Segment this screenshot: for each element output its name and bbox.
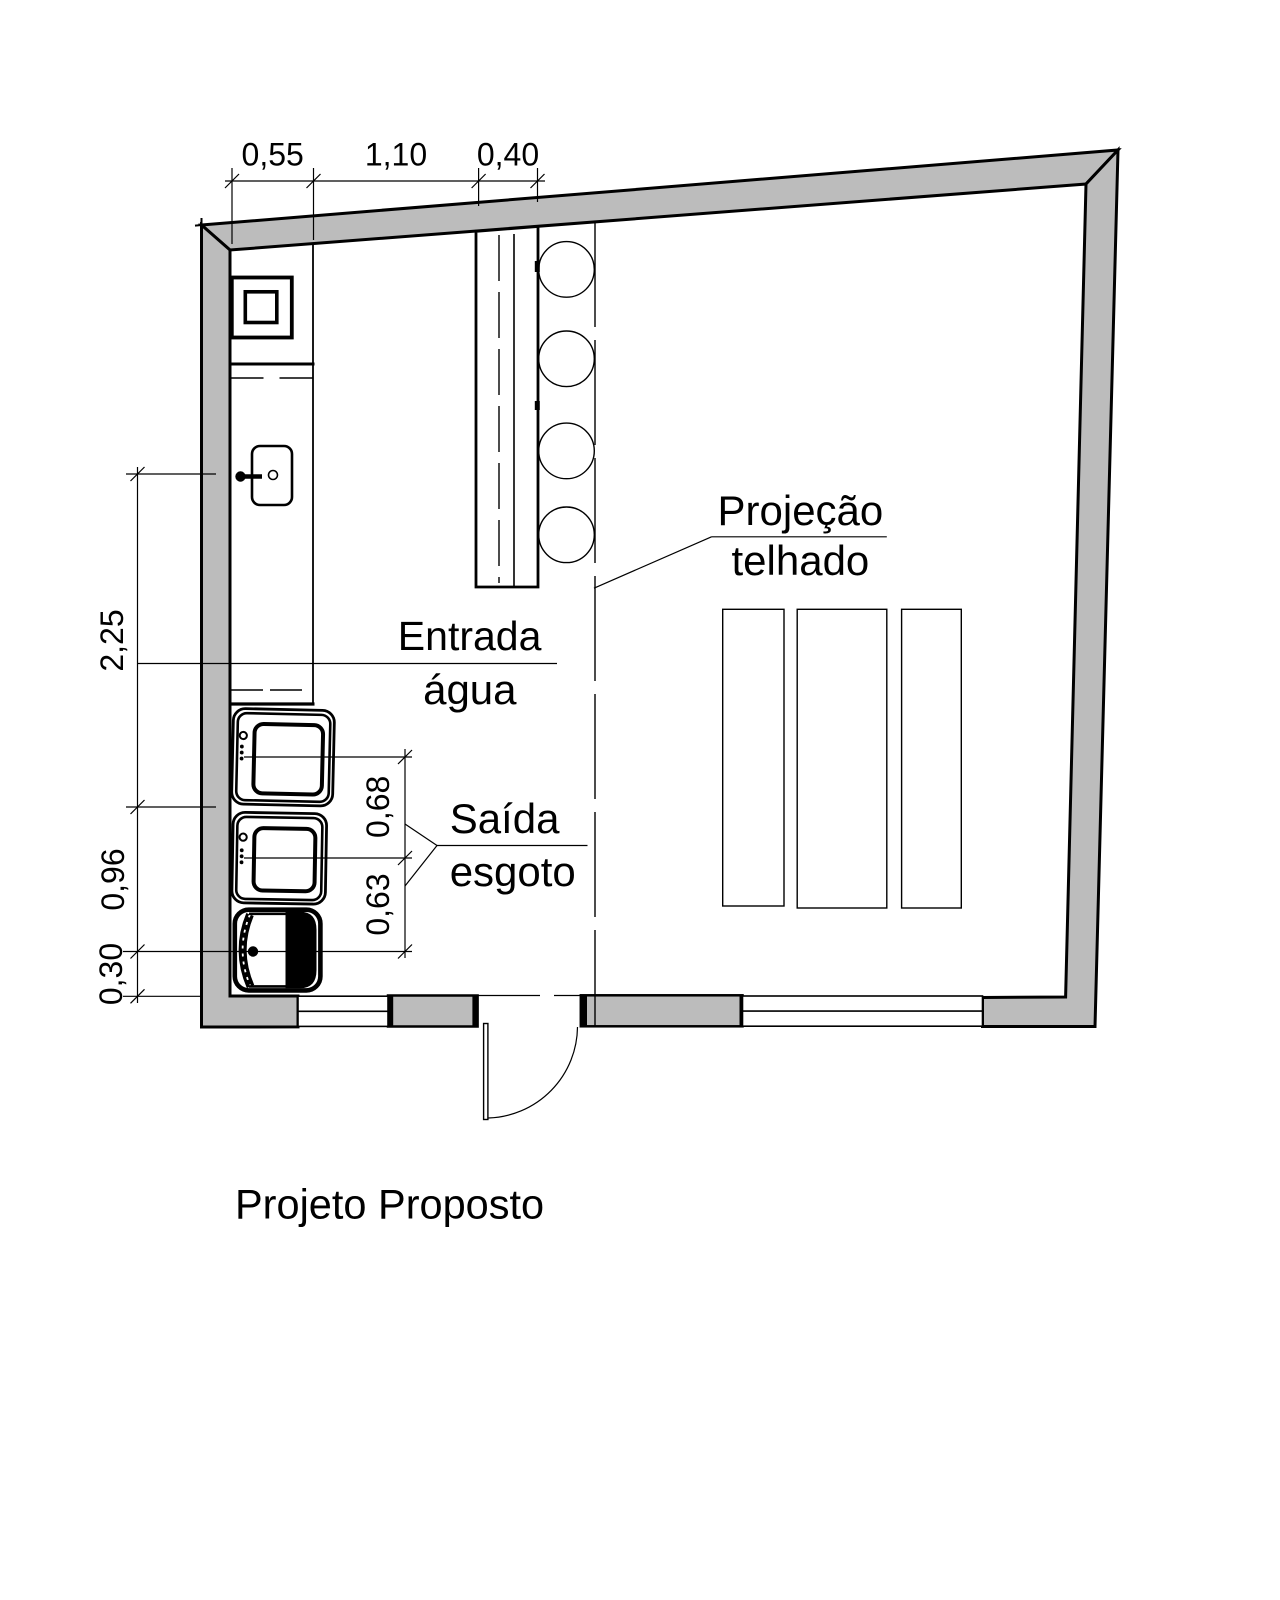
svg-text:0,68: 0,68: [360, 776, 396, 838]
svg-text:0,63: 0,63: [360, 873, 396, 935]
svg-text:2,25: 2,25: [94, 609, 130, 671]
svg-text:Projeção: Projeção: [718, 487, 884, 534]
svg-text:0,40: 0,40: [477, 137, 539, 173]
svg-text:Projeto Proposto: Projeto Proposto: [235, 1181, 544, 1228]
svg-text:Entrada: Entrada: [398, 613, 542, 659]
svg-text:Saída: Saída: [450, 795, 560, 842]
svg-text:0,30: 0,30: [93, 943, 129, 1005]
svg-text:1,10: 1,10: [365, 137, 427, 173]
svg-text:esgoto: esgoto: [450, 848, 576, 895]
svg-text:telhado: telhado: [732, 537, 870, 584]
svg-text:água: água: [423, 666, 517, 713]
svg-text:0,96: 0,96: [95, 848, 131, 910]
svg-text:0,55: 0,55: [242, 137, 304, 173]
